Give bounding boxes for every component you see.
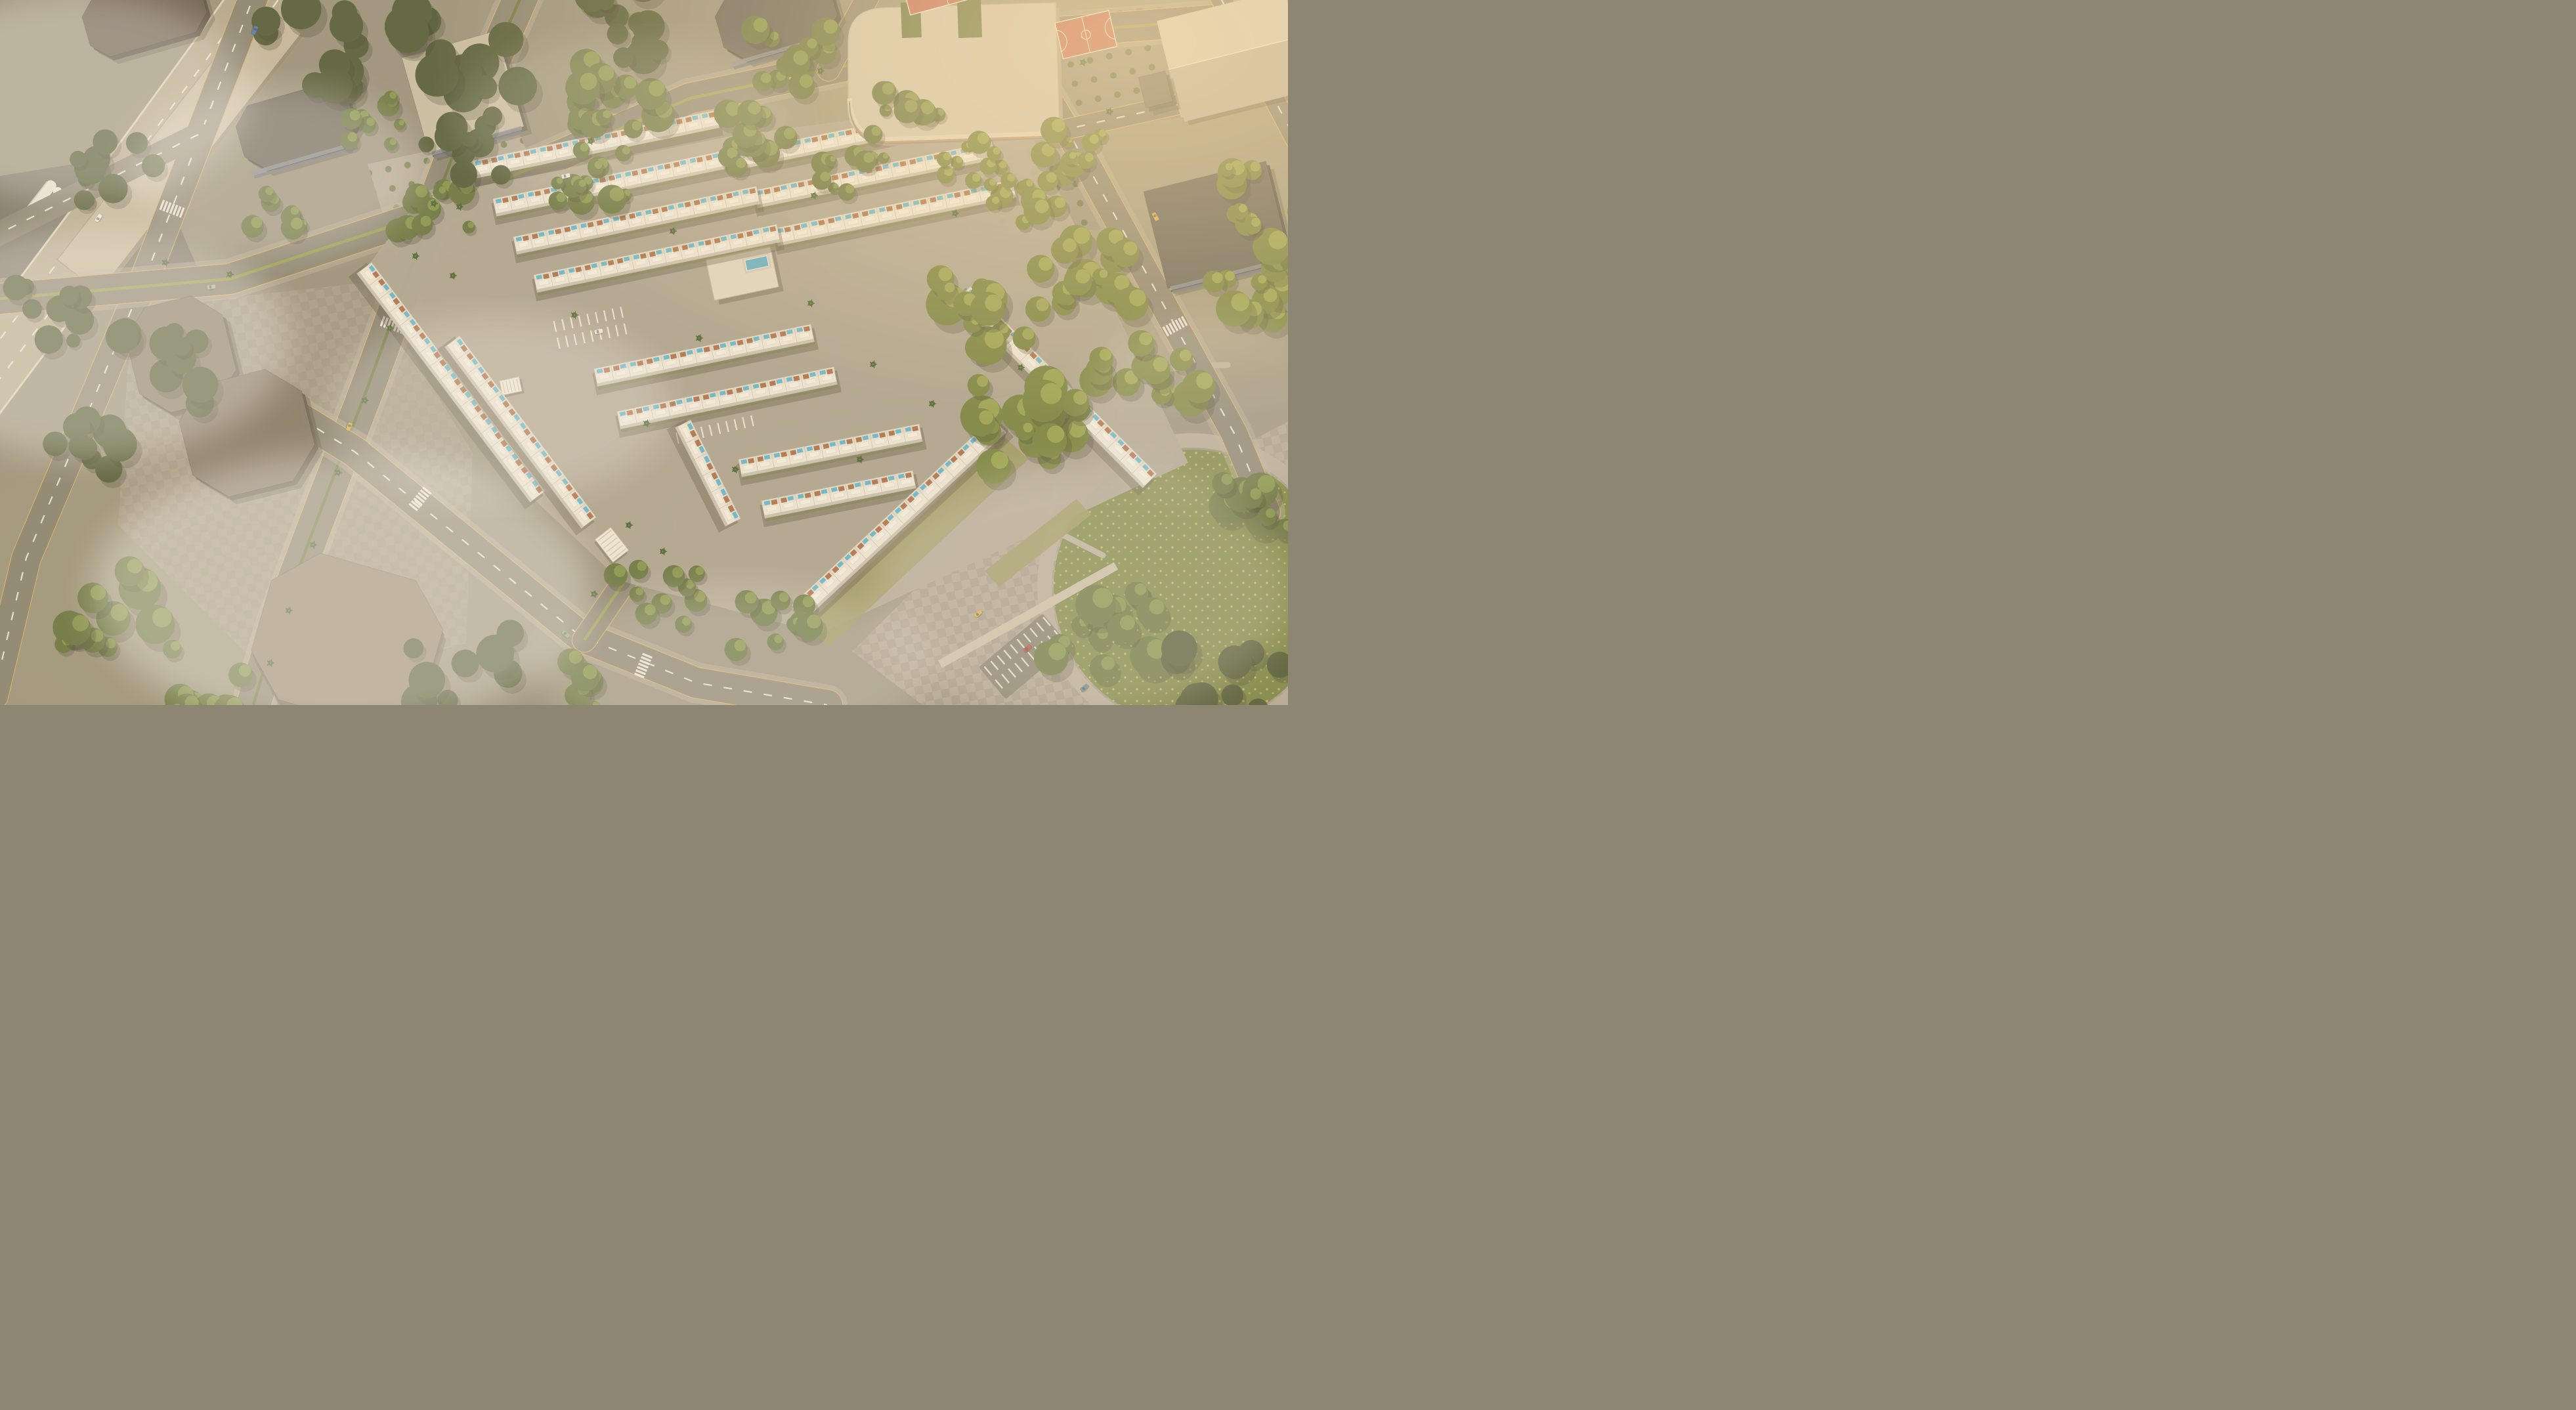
scene-canvas <box>0 0 1288 705</box>
aerial-community-render <box>0 0 1288 705</box>
haze-grade <box>0 0 1288 705</box>
